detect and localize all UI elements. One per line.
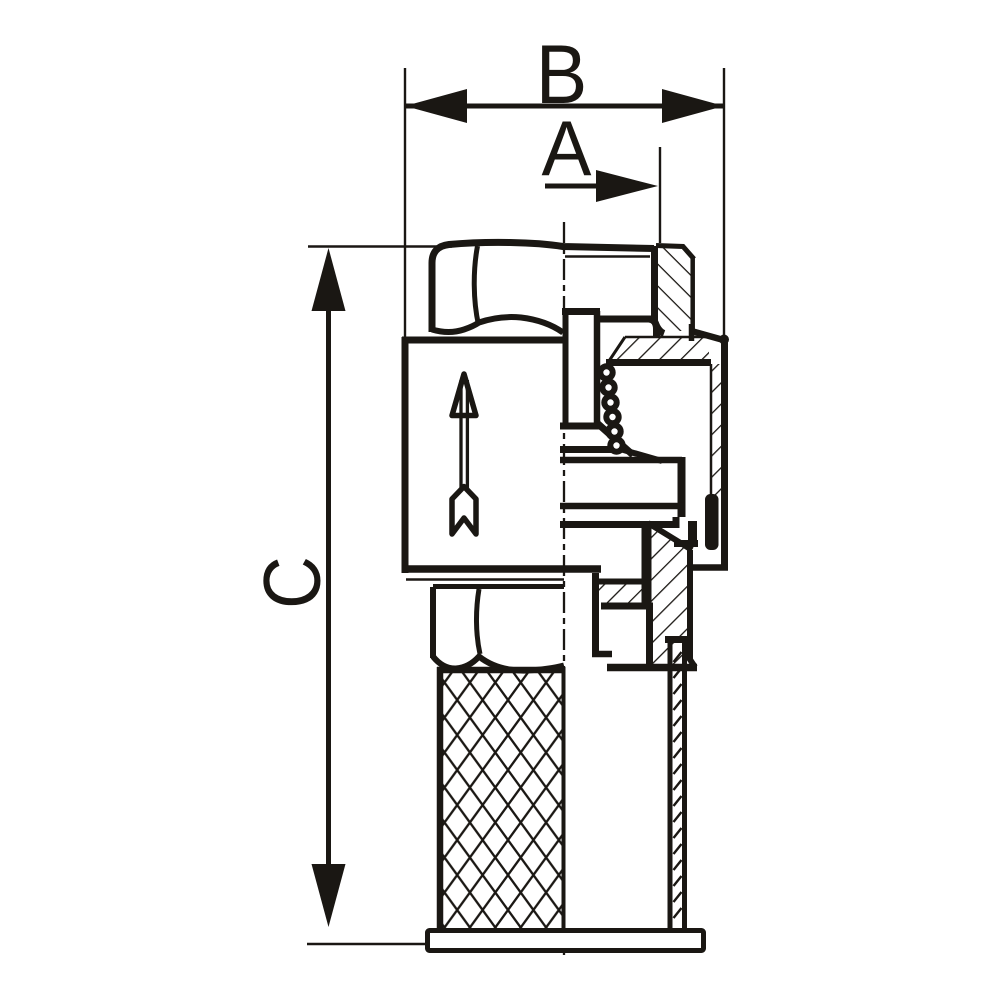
- svg-text:A: A: [542, 106, 592, 193]
- svg-text:C: C: [247, 556, 337, 609]
